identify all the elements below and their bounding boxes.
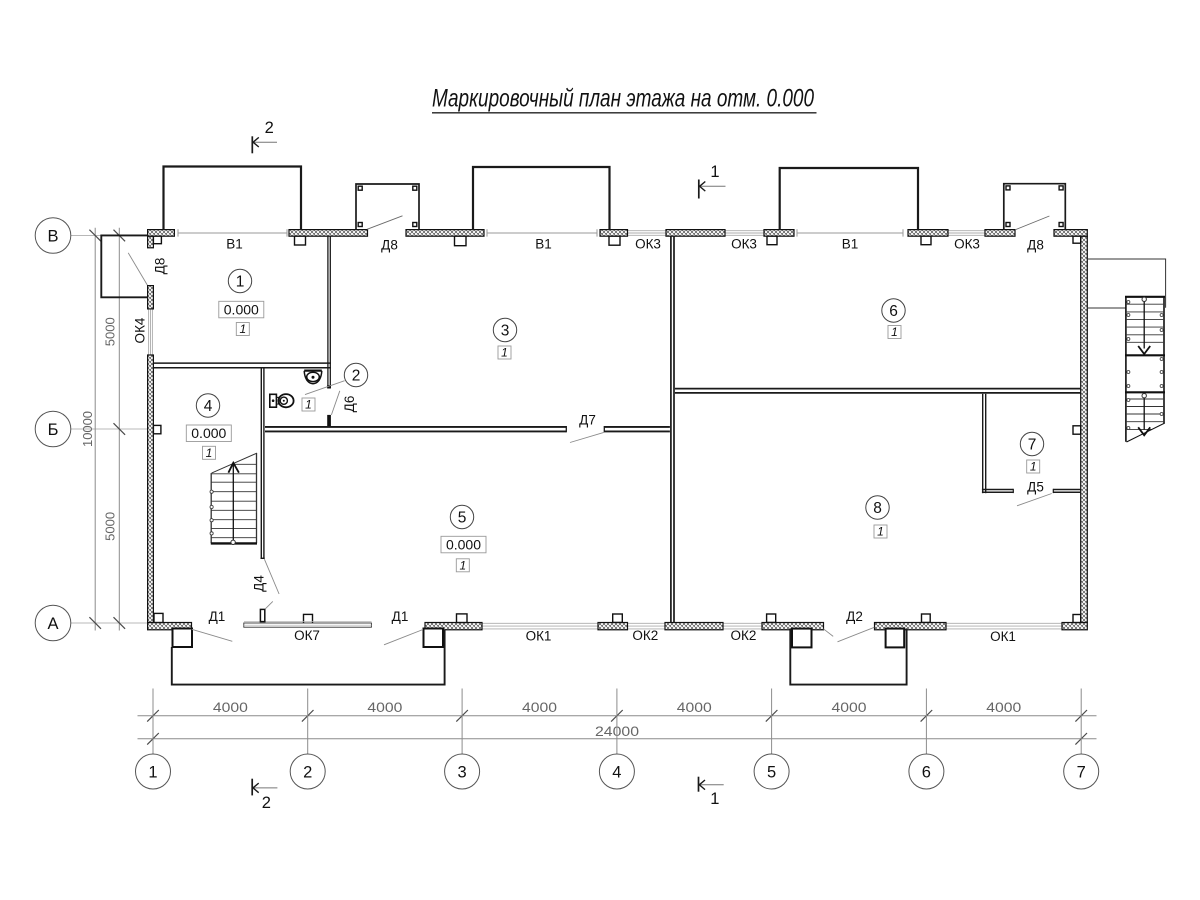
svg-text:ОК3: ОК3 <box>954 237 980 252</box>
svg-text:Д7: Д7 <box>579 413 596 428</box>
svg-text:Д8: Д8 <box>1027 238 1044 253</box>
svg-text:ОК1: ОК1 <box>526 629 552 644</box>
svg-text:В1: В1 <box>226 237 243 252</box>
svg-text:4000: 4000 <box>677 700 712 715</box>
svg-text:Б: Б <box>48 421 59 439</box>
svg-text:6: 6 <box>922 763 931 781</box>
svg-text:ОК2: ОК2 <box>632 628 658 643</box>
svg-text:4: 4 <box>612 763 621 781</box>
svg-text:1: 1 <box>891 325 898 339</box>
svg-text:Маркировочный план этажа на от: Маркировочный план этажа на отм. 0.000 <box>432 85 814 113</box>
svg-text:5000: 5000 <box>103 512 118 541</box>
svg-text:1: 1 <box>710 790 719 808</box>
svg-text:Д1: Д1 <box>392 609 409 624</box>
svg-text:8: 8 <box>873 500 882 517</box>
svg-text:1: 1 <box>236 274 245 291</box>
svg-text:1: 1 <box>877 525 884 539</box>
svg-text:2: 2 <box>303 763 312 781</box>
svg-text:ОК3: ОК3 <box>635 237 661 252</box>
svg-text:А: А <box>47 615 58 633</box>
svg-text:6: 6 <box>889 303 898 320</box>
svg-text:5: 5 <box>767 763 776 781</box>
svg-text:Д5: Д5 <box>1027 480 1044 495</box>
svg-text:1: 1 <box>501 346 508 360</box>
svg-text:Д6: Д6 <box>342 396 357 413</box>
svg-text:ОК4: ОК4 <box>133 317 148 343</box>
svg-text:2: 2 <box>352 368 361 385</box>
svg-text:ОК7: ОК7 <box>294 628 320 643</box>
svg-text:Д8: Д8 <box>153 258 168 275</box>
svg-text:1: 1 <box>206 446 213 460</box>
svg-text:2: 2 <box>262 794 271 812</box>
svg-text:5000: 5000 <box>103 317 118 346</box>
svg-text:ОК3: ОК3 <box>731 237 757 252</box>
svg-text:2: 2 <box>265 119 274 137</box>
svg-text:0.000: 0.000 <box>446 536 481 552</box>
svg-text:3: 3 <box>501 323 510 340</box>
svg-text:4000: 4000 <box>367 700 402 715</box>
svg-text:3: 3 <box>458 763 467 781</box>
svg-text:1: 1 <box>148 763 157 781</box>
svg-text:0.000: 0.000 <box>191 425 226 441</box>
svg-text:В1: В1 <box>535 237 552 252</box>
svg-text:5: 5 <box>458 510 467 527</box>
svg-text:0.000: 0.000 <box>224 301 259 317</box>
svg-text:1: 1 <box>710 163 719 181</box>
svg-text:10000: 10000 <box>80 411 95 447</box>
svg-text:1: 1 <box>459 558 466 572</box>
svg-text:1: 1 <box>305 398 312 412</box>
svg-text:4000: 4000 <box>213 700 248 715</box>
svg-text:В1: В1 <box>842 237 859 252</box>
svg-text:4000: 4000 <box>522 700 557 715</box>
svg-text:Д8: Д8 <box>381 238 398 253</box>
svg-text:1: 1 <box>239 322 246 336</box>
svg-text:4000: 4000 <box>832 700 867 715</box>
svg-text:ОК2: ОК2 <box>730 628 756 643</box>
svg-text:В: В <box>47 227 58 245</box>
svg-text:7: 7 <box>1077 763 1086 781</box>
svg-text:ОК1: ОК1 <box>990 629 1016 644</box>
svg-text:1: 1 <box>1030 460 1037 474</box>
svg-text:Д4: Д4 <box>252 575 267 592</box>
svg-text:7: 7 <box>1028 437 1037 454</box>
svg-text:Д2: Д2 <box>846 609 863 624</box>
svg-text:Д1: Д1 <box>209 609 226 624</box>
svg-text:4000: 4000 <box>986 700 1021 715</box>
svg-text:4: 4 <box>204 398 213 415</box>
